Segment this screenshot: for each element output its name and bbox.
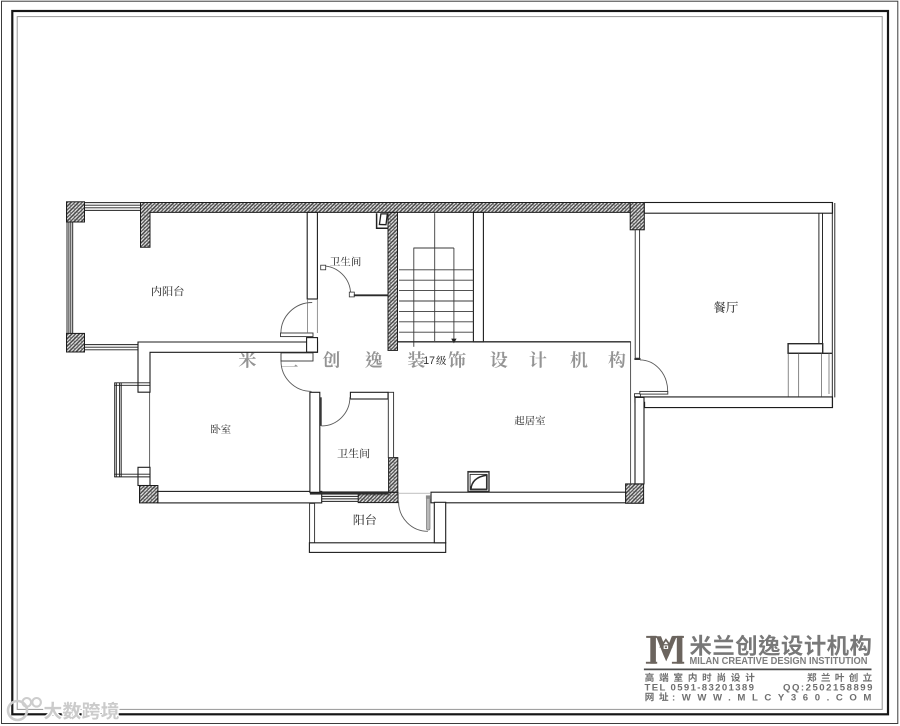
svg-text:MILAN CREATIVE DESIGN INSTITUT: MILAN CREATIVE DESIGN INSTITUTION — [690, 656, 868, 667]
svg-text:17: 17 — [423, 355, 435, 367]
